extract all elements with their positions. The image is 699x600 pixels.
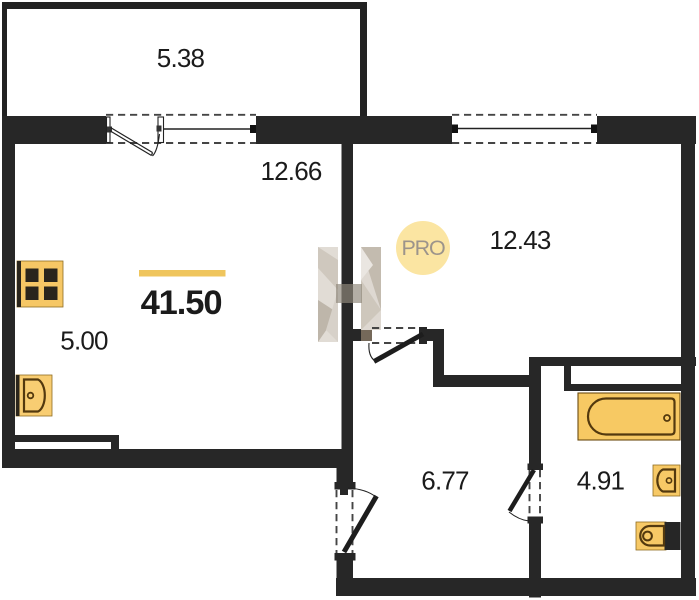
svg-text:6.77: 6.77 (421, 466, 469, 496)
svg-text:4.91: 4.91 (577, 466, 625, 496)
svg-text:5.00: 5.00 (60, 326, 108, 356)
svg-text:PRO: PRO (402, 236, 445, 260)
svg-text:5.38: 5.38 (157, 43, 205, 73)
svg-text:12.43: 12.43 (489, 225, 550, 255)
svg-text:41.50: 41.50 (141, 284, 222, 322)
svg-text:12.66: 12.66 (260, 156, 321, 186)
